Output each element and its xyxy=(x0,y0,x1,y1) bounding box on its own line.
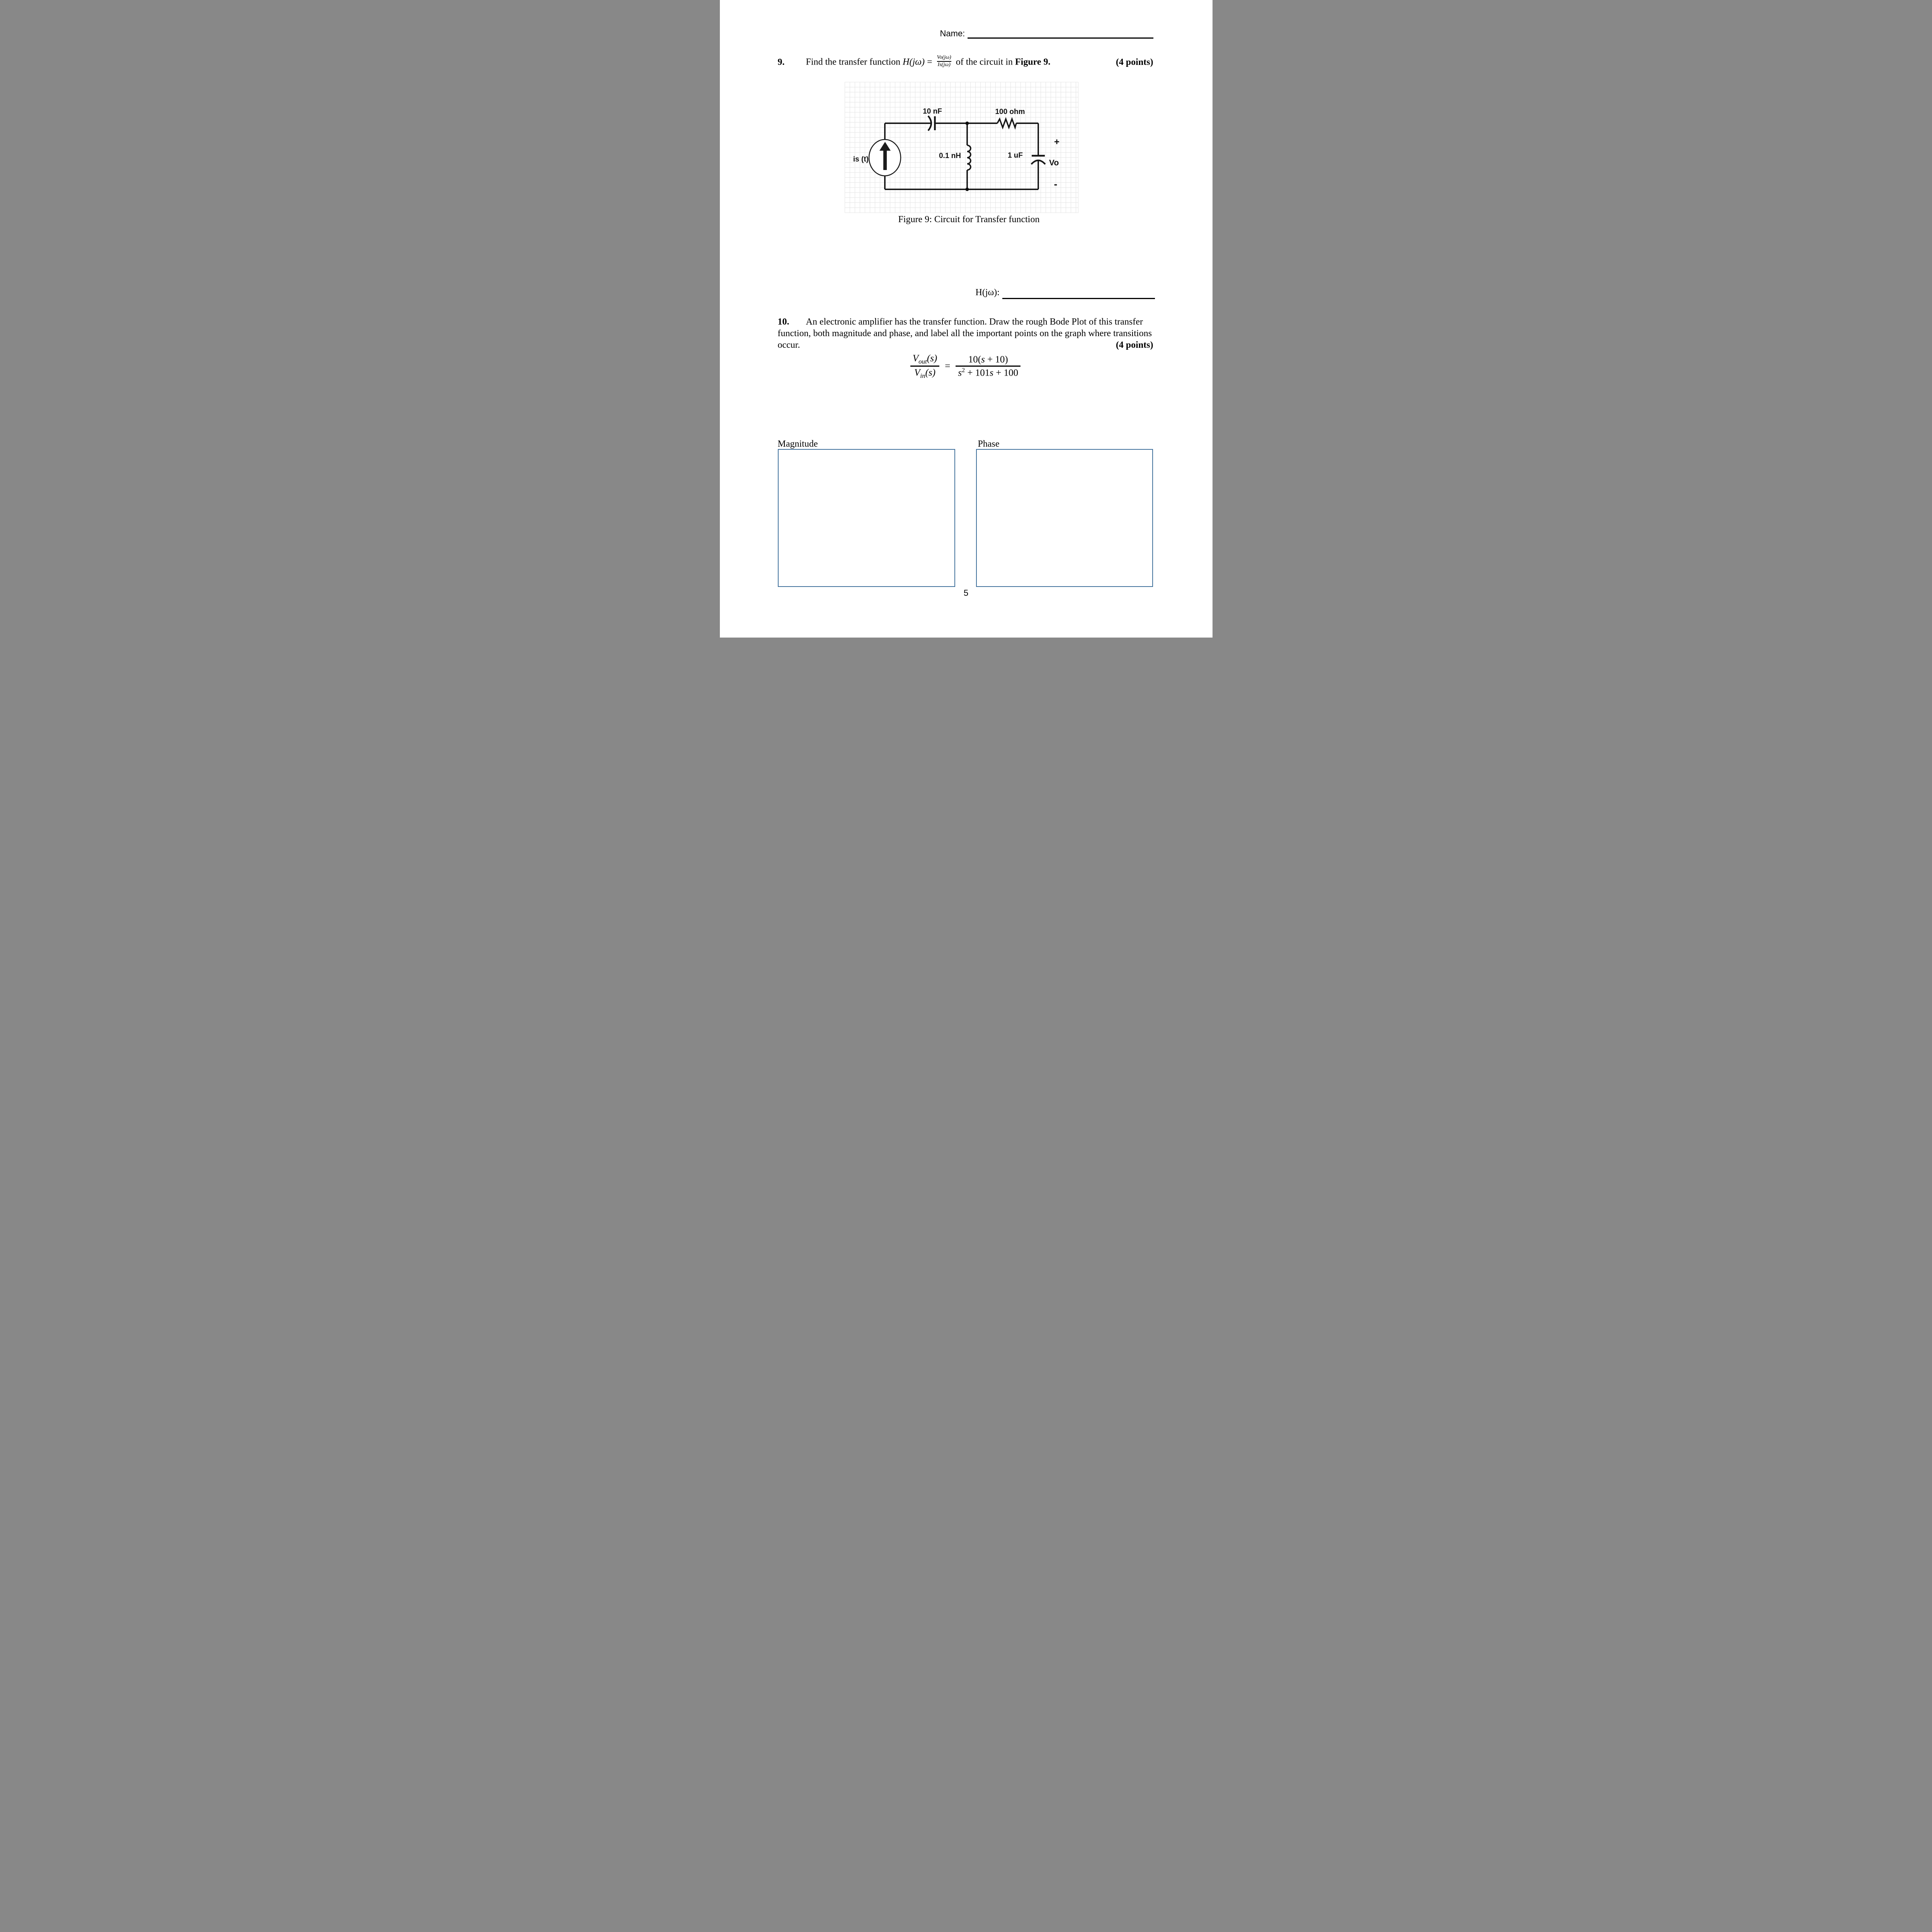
junction-node-top xyxy=(965,122,969,125)
circuit-diagram: is (t) 10 nF 100 ohm 0.1 nH 1 uF + Vo - xyxy=(845,82,1078,213)
question-9-number: 9. xyxy=(778,57,806,68)
name-label: Name: xyxy=(940,29,965,39)
phase-label: Phase xyxy=(978,439,1000,449)
page-number: 5 xyxy=(720,588,1213,598)
q9-fraction-denominator: Is(jω) xyxy=(937,61,951,68)
source-label: is (t) xyxy=(853,155,868,163)
magnitude-label: Magnitude xyxy=(778,439,818,449)
question-10-line1: An electronic amplifier has the transfer… xyxy=(806,316,1143,328)
q9-fraction-numerator: Vo(jω) xyxy=(937,54,951,61)
vo-label: Vo xyxy=(1049,158,1059,167)
cap1-label: 10 nF xyxy=(923,107,942,116)
equation-rhs-fraction: 10(s + 10) s2 + 101s + 100 xyxy=(956,354,1020,379)
plus-sign: + xyxy=(1054,137,1059,147)
transfer-function-equation: Vout(s) Vin(s) = 10(s + 10) s2 + 101s + … xyxy=(778,352,1153,380)
question-9: 9. Find the transfer function H(jω) = Vo… xyxy=(778,56,1153,70)
question-10-number: 10. xyxy=(778,316,806,328)
answer-label: H(jω): xyxy=(976,287,1000,298)
figure-9-circuit: is (t) 10 nF 100 ohm 0.1 nH 1 uF + Vo - xyxy=(845,82,1078,213)
inductor-label: 0.1 nH xyxy=(939,152,961,160)
equation-equals: = xyxy=(945,361,950,372)
question-10-points: (4 points) xyxy=(1116,339,1153,351)
magnitude-plot-box[interactable] xyxy=(778,449,955,587)
cap2-label: 1 uF xyxy=(1007,151,1022,160)
minus-sign: - xyxy=(1054,178,1057,190)
figure-9-caption: Figure 9: Circuit for Transfer function xyxy=(845,214,1094,225)
resistor-label: 100 ohm xyxy=(995,108,1025,116)
q9-fraction: Vo(jω)Is(jω) xyxy=(937,54,951,68)
phase-plot-box[interactable] xyxy=(976,449,1153,587)
exam-page: Name: 9. Find the transfer function H(jω… xyxy=(720,0,1213,638)
figure-9-reference: Figure 9. xyxy=(1015,57,1051,67)
name-blank-line[interactable] xyxy=(968,37,1153,39)
question-9-points: (4 points) xyxy=(1116,57,1153,68)
question-10-line3: occur. xyxy=(778,339,800,351)
question-10: 10. An electronic amplifier has the tran… xyxy=(778,316,1153,351)
junction-node-bottom xyxy=(965,188,969,191)
question-9-text: Find the transfer function H(jω) = Vo(jω… xyxy=(806,56,1051,70)
answer-blank-line[interactable] xyxy=(1002,298,1155,299)
equation-lhs-fraction: Vout(s) Vin(s) xyxy=(910,352,939,380)
question-10-line2: function, both magnitude and phase, and … xyxy=(778,328,1153,339)
transfer-function-symbol: H xyxy=(903,57,909,67)
